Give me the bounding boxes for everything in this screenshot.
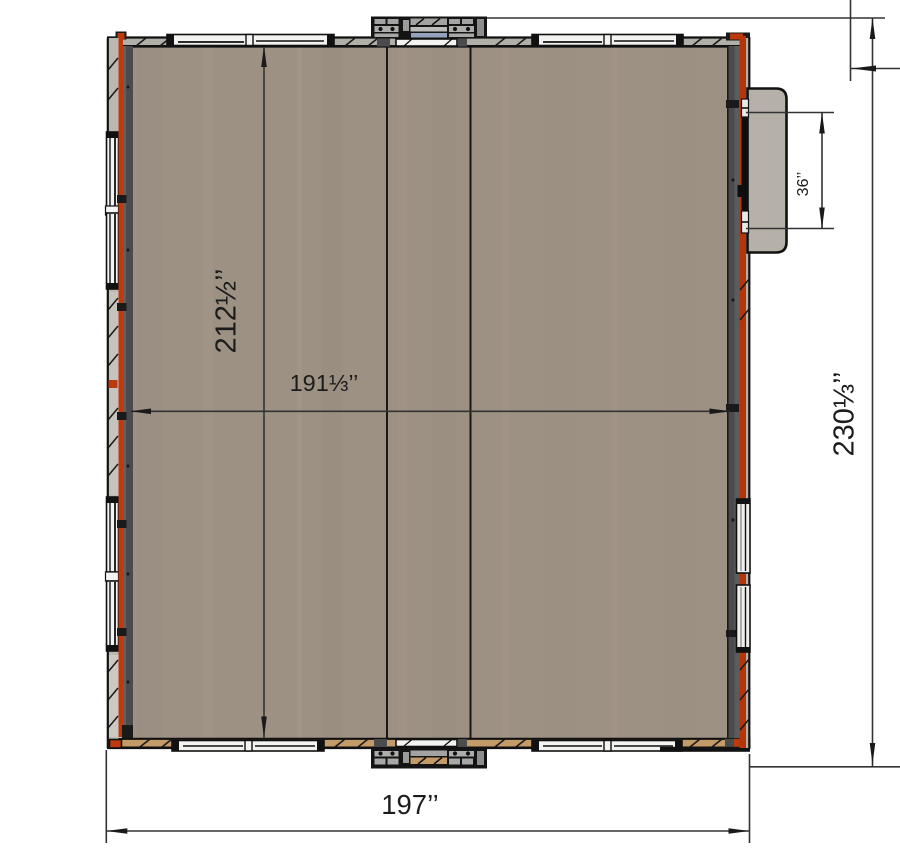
- svg-text:191⅓’’: 191⅓’’: [290, 370, 359, 396]
- svg-text:230⅓’’: 230⅓’’: [829, 372, 861, 457]
- svg-text:36’’: 36’’: [795, 172, 812, 197]
- svg-text:197’’: 197’’: [381, 789, 439, 820]
- svg-text:212½’’: 212½’’: [211, 269, 243, 354]
